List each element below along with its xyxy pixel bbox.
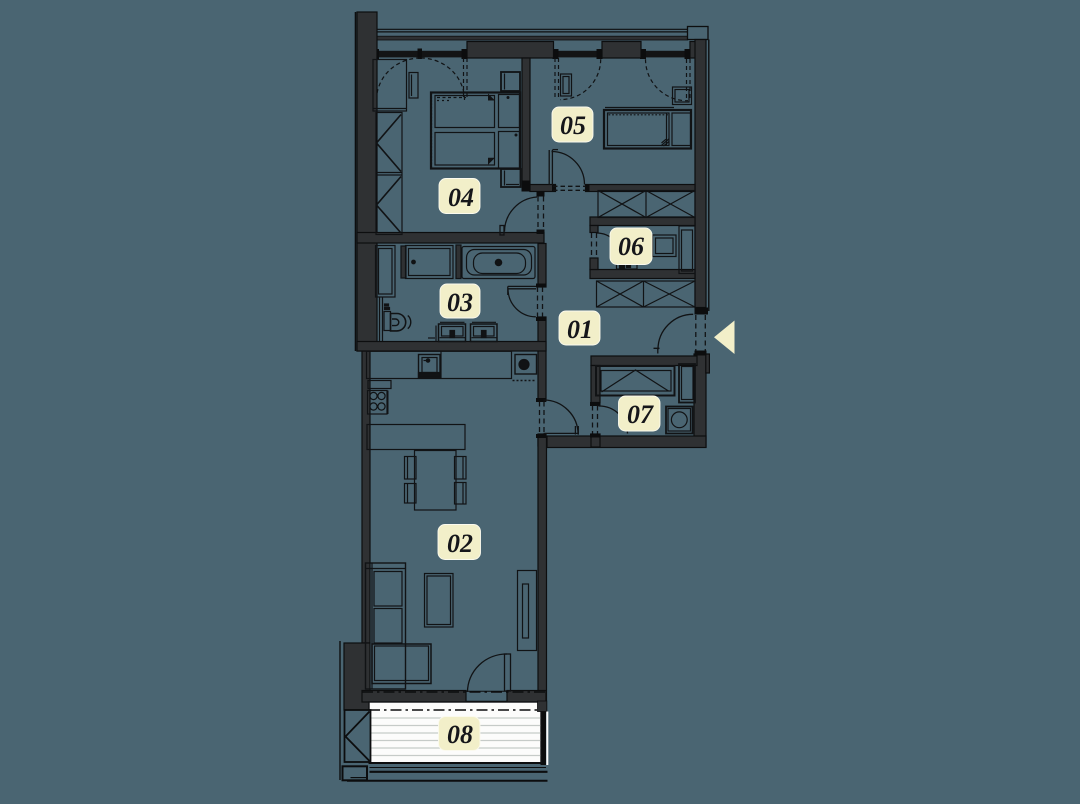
svg-text:03: 03 [447,288,473,317]
svg-text:01: 01 [567,315,593,344]
svg-text:06: 06 [618,232,644,261]
svg-text:08: 08 [447,720,473,749]
svg-text:05: 05 [560,111,586,140]
svg-text:07: 07 [627,400,654,429]
svg-text:02: 02 [447,529,473,558]
svg-text:04: 04 [448,183,474,212]
